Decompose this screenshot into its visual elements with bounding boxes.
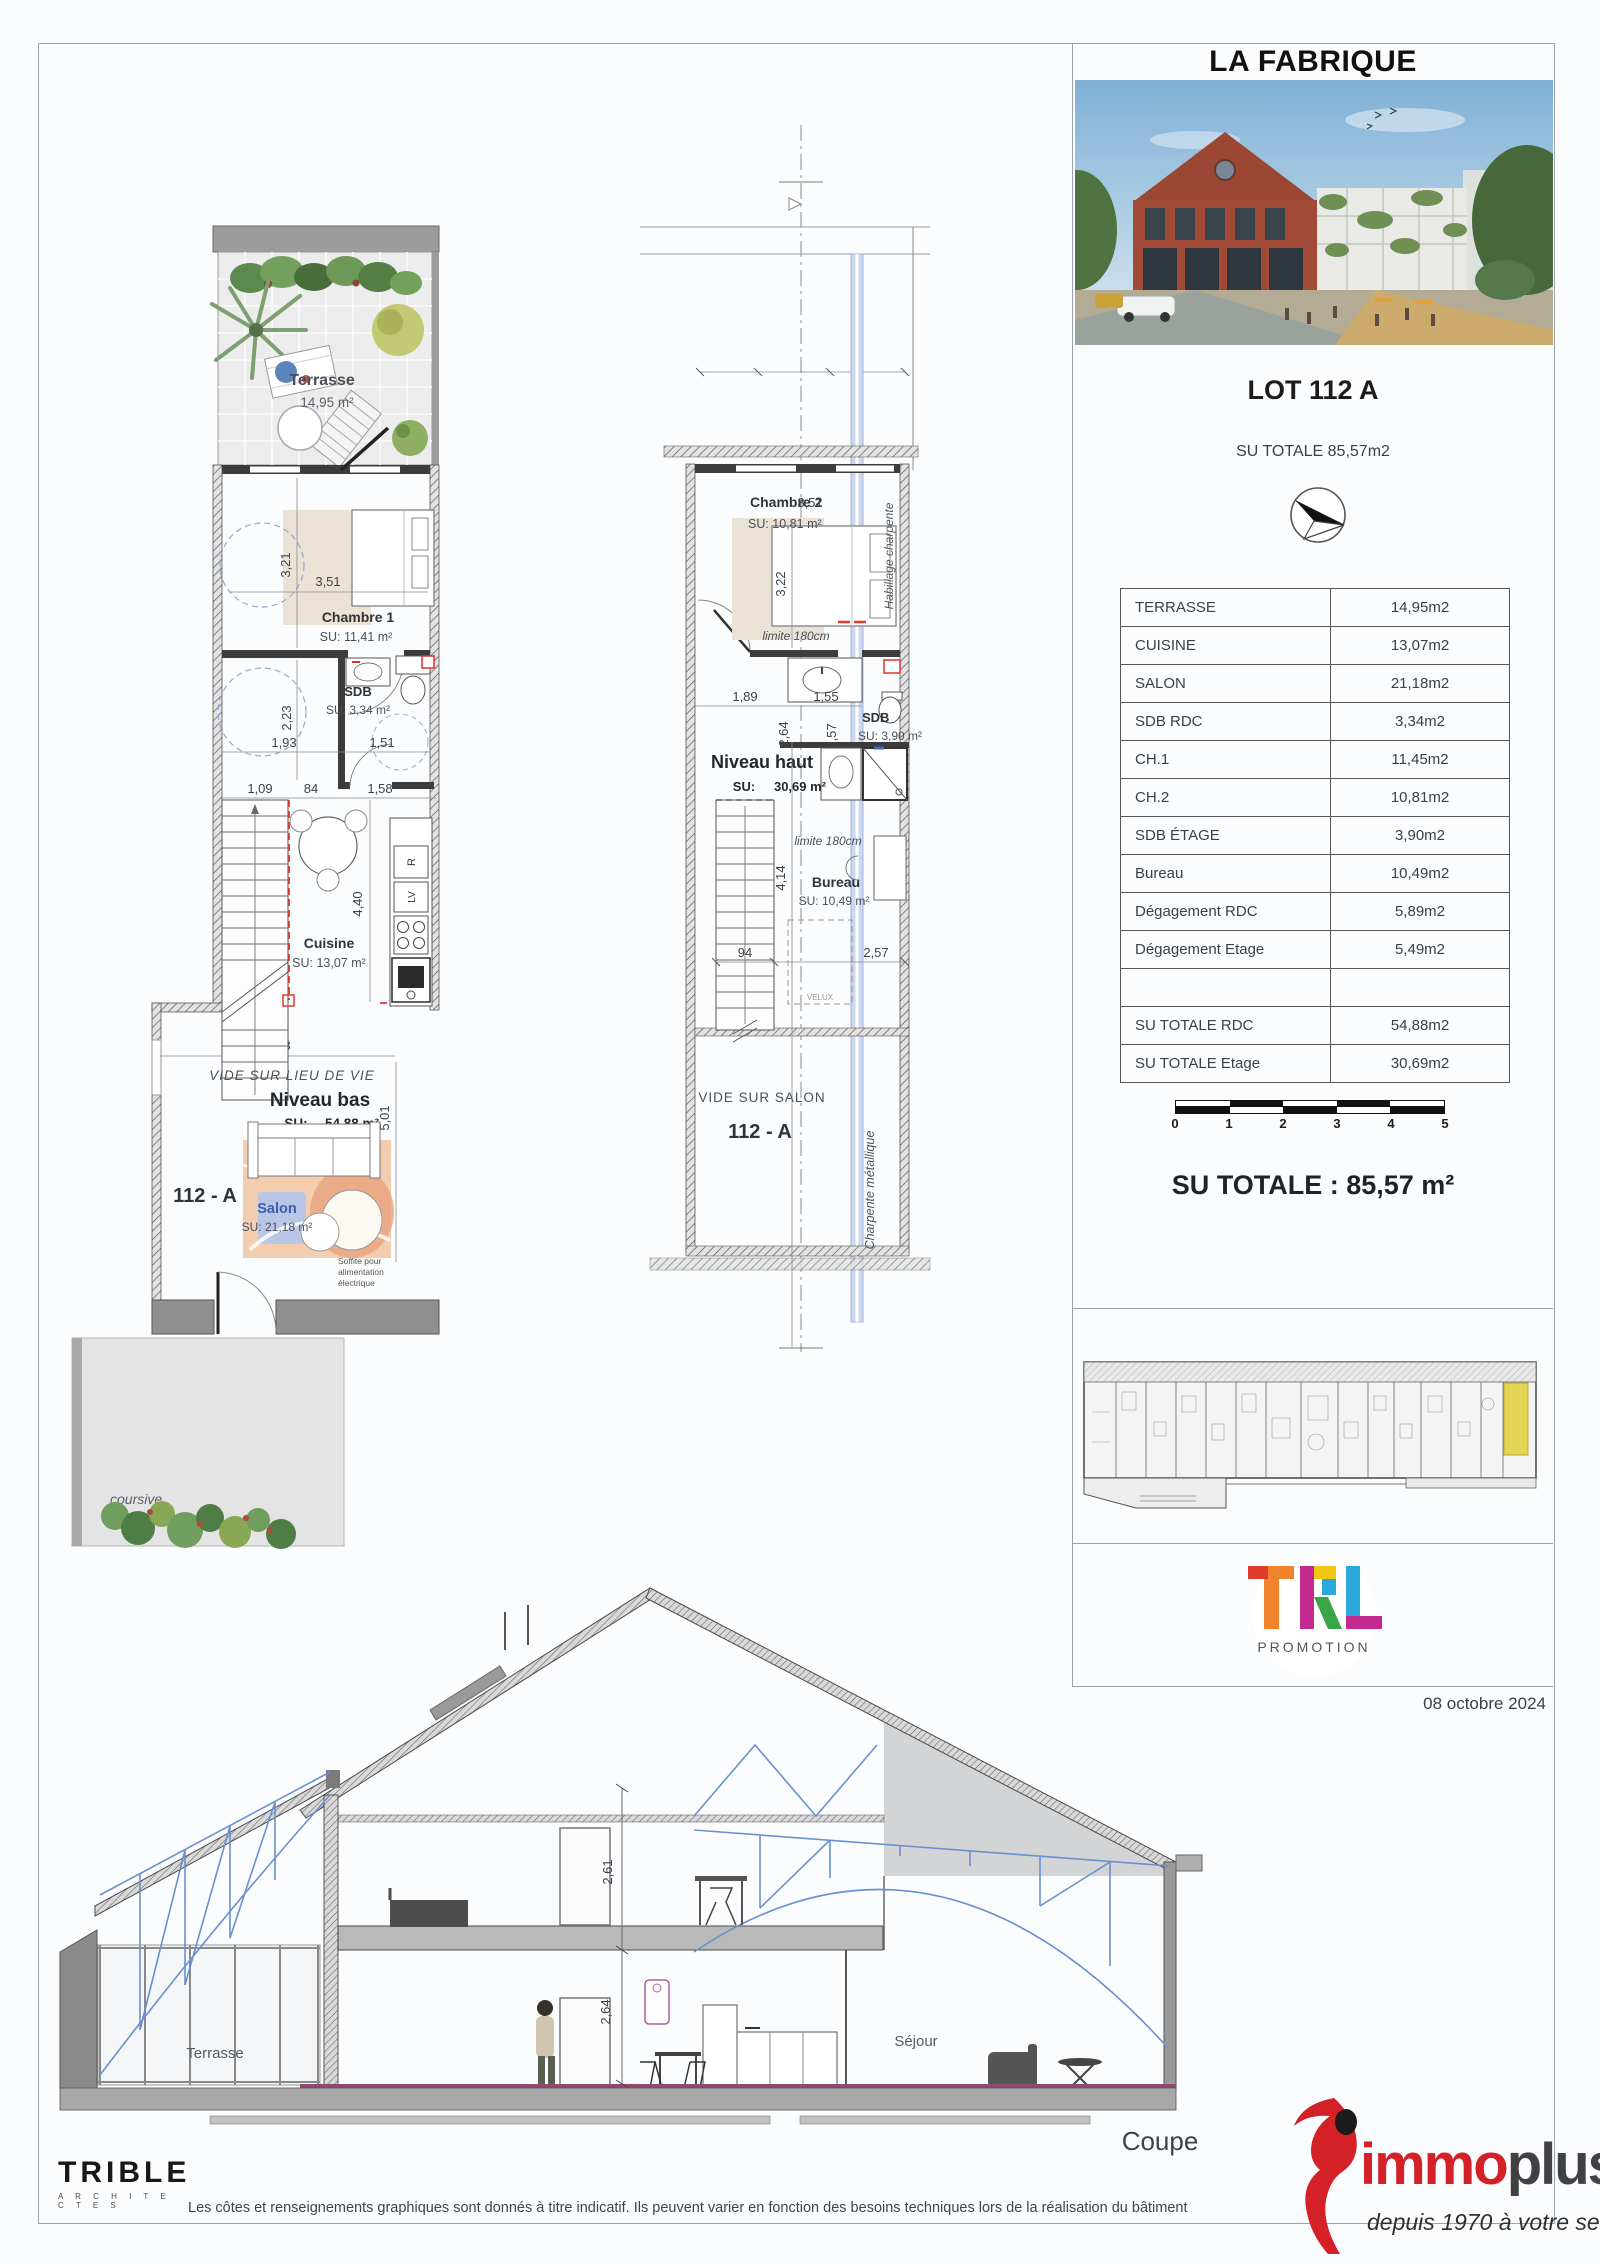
table-row-value: 5,89m2 (1331, 903, 1509, 920)
lot-number-rdc: 112 - A (173, 1185, 237, 1207)
table-row: CUISINE13,07m2 (1121, 627, 1509, 665)
table-row-value: 14,95m2 (1331, 599, 1509, 616)
soffit-note-3: électrique (338, 1278, 375, 1288)
bedroom1: Chambre 1 SU: 11,41 m² (218, 510, 434, 770)
project-title: LA FABRIQUE (1072, 45, 1554, 79)
architect-logo: TRIBLE A R C H I T E C T E S (58, 2156, 188, 2210)
table-row-value: 21,18m2 (1331, 675, 1509, 692)
dim-440: 4,40 (350, 891, 365, 916)
kitchen-area: SU: 13,07 m² (292, 956, 366, 970)
table-row-value: 10,81m2 (1331, 789, 1509, 806)
table-row-value: 10,49m2 (1331, 865, 1509, 882)
bedroom2-area: SU: 10,81 m² (748, 517, 822, 531)
immoplus-immo: immo (1360, 2132, 1507, 2197)
table-row-value: 11,45m2 (1331, 751, 1509, 768)
table-row-value: 3,90m2 (1331, 827, 1509, 844)
lot-number-etage: 112 - A (728, 1121, 792, 1143)
lot-title: LOT 112 A (1072, 375, 1554, 406)
living-room-area: SU: 21,18 m² (242, 1220, 313, 1234)
table-row: SALON21,18m2 (1121, 665, 1509, 703)
coursive-area: coursive (72, 1272, 439, 1549)
terrace-label: Terrasse (289, 372, 355, 389)
section-title: Coupe (1122, 2126, 1199, 2156)
void-living-label: VIDE SUR LIEU DE VIE (209, 1068, 375, 1083)
dim-et-189: 1,89 (732, 689, 757, 704)
table-row-label: SDB RDC (1121, 703, 1331, 740)
table-row (1121, 969, 1509, 1007)
table-row-value: 5,49m2 (1331, 941, 1509, 958)
level-high-su-label: SU: (733, 779, 755, 794)
table-row: SU TOTALE Etage30,69m2 (1121, 1045, 1509, 1083)
building-render-image (1075, 80, 1553, 345)
table-row-value: 30,69m2 (1331, 1055, 1509, 1072)
kitchen-label: Cuisine (304, 935, 355, 951)
office-label: Bureau (812, 874, 860, 890)
table-row-label: CH.1 (1121, 741, 1331, 778)
bathroom-etage-area: SU: 3,90 m² (858, 729, 922, 743)
immoplus-logo: immoplus depuis 1970 à votre service (1272, 2092, 1600, 2262)
immoplus-logo-graphic: immoplus depuis 1970 à votre service (1272, 2092, 1600, 2262)
dim-109: 1,09 (247, 781, 272, 796)
floor-plan-rdc: Terrasse 14,95 m² (60, 150, 480, 1565)
table-row-label: CH.2 (1121, 779, 1331, 816)
scale-tick-label: 1 (1225, 1116, 1232, 1131)
bedroom1-area: SU: 11,41 m² (320, 630, 393, 644)
section-sejour-label: Séjour (894, 2033, 937, 2050)
dim-351: 3,51 (315, 574, 340, 589)
table-row-label: SALON (1121, 665, 1331, 702)
dishwasher-label: LV (407, 891, 418, 903)
table-row: CH.111,45m2 (1121, 741, 1509, 779)
immoplus-plus: plus (1507, 2132, 1600, 2197)
dim-223: 2,23 (279, 705, 294, 730)
table-row-label: CUISINE (1121, 627, 1331, 664)
areas-table: TERRASSE14,95m2CUISINE13,07m2SALON21,18m… (1120, 588, 1510, 1083)
table-row-label: Bureau (1121, 855, 1331, 892)
table-row: SU TOTALE RDC54,88m2 (1121, 1007, 1509, 1045)
dim-et-257a: 2,57 (824, 723, 839, 748)
terrace-area: Terrasse 14,95 m² (212, 226, 439, 467)
table-row-label (1121, 969, 1331, 1006)
table-row: CH.210,81m2 (1121, 779, 1509, 817)
scale-segment (1230, 1107, 1284, 1113)
key-plan (1076, 1352, 1546, 1520)
dim-193: 1,93 (271, 735, 296, 750)
panel-rule-1 (1072, 1308, 1553, 1309)
table-row: SDB ÉTAGE3,90m2 (1121, 817, 1509, 855)
cross-section: 2,61 2,64 Terrasse Séjour Coupe (50, 1565, 1210, 2165)
trl-promotion-logo: PROMOTION (1238, 1552, 1390, 1678)
panel-divider (1072, 43, 1073, 1686)
scale-tick-label: 0 (1171, 1116, 1178, 1131)
velux-label: VELUX (807, 993, 834, 1002)
immoplus-tagline: depuis 1970 à votre service (1367, 2209, 1600, 2235)
lot-subtitle: SU TOTALE 85,57m2 (1072, 443, 1554, 461)
dim-sec-261: 2,61 (600, 1859, 615, 1884)
scale-tick-label: 5 (1441, 1116, 1448, 1131)
north-compass-icon (1286, 483, 1350, 547)
terrace-glazing (98, 1945, 320, 2085)
ground-slab (60, 2084, 1176, 2124)
total-surface: SU TOTALE : 85,57 m² (1072, 1170, 1554, 1201)
scale-bar: 012345 (1175, 1100, 1445, 1134)
terrace-area-value: 14,95 m² (300, 395, 354, 410)
scale-segment (1176, 1107, 1230, 1113)
scale-segment (1337, 1107, 1391, 1113)
scale-segment (1230, 1101, 1284, 1106)
scale-bar-top (1175, 1100, 1445, 1107)
height-limit-label-1: limite 180cm (762, 629, 829, 643)
table-row-label: Dégagement RDC (1121, 893, 1331, 930)
architect-subtitle: A R C H I T E C T E S (58, 2192, 188, 2210)
truss-cladding-label: Habillage charpente (882, 502, 896, 609)
dim-151: 1,51 (369, 735, 394, 750)
table-row-label: Dégagement Etage (1121, 931, 1331, 968)
soffit-note-1: Soffite pour (338, 1256, 381, 1266)
scale-tick-label: 4 (1387, 1116, 1394, 1131)
dim-84: 84 (304, 781, 318, 796)
dim-sec-264: 2,64 (598, 1999, 613, 2024)
table-row: Dégagement RDC5,89m2 (1121, 893, 1509, 931)
void-over-living-label: VIDE SUR SALON (698, 1090, 825, 1105)
disclaimer-text: Les côtes et renseignements graphiques s… (188, 2200, 1368, 2216)
dim-et-94: 94 (738, 945, 752, 960)
scale-tick-label: 3 (1333, 1116, 1340, 1131)
soffit-note-2: alimentation (338, 1267, 384, 1277)
upper-ceiling (338, 1815, 884, 1822)
scale-segment (1337, 1101, 1391, 1106)
section-terrace-label: Terrasse (186, 2045, 244, 2062)
table-row-value: 13,07m2 (1331, 637, 1509, 654)
scale-segment (1283, 1107, 1337, 1113)
bathroom-etage-label: SDB (862, 710, 889, 725)
steel-frame-label: Charpente métallique (863, 1131, 877, 1250)
table-row-label: SU TOTALE RDC (1121, 1007, 1331, 1044)
table-row: Dégagement Etage5,49m2 (1121, 931, 1509, 969)
table-row-value: 3,34m2 (1331, 713, 1509, 730)
dim-et-257b: 2,57 (863, 945, 888, 960)
scale-bar-numbers: 012345 (1175, 1114, 1445, 1132)
floor-plan-etage: Chambre 2 SU: 10,81 m² 3,51 3,22 Habilla… (600, 110, 940, 1360)
office-area: SU: 10,49 m² (799, 894, 870, 908)
level-low-label: Niveau bas (270, 1090, 370, 1111)
panel-rule-2 (1072, 1543, 1553, 1544)
bedroom2: Chambre 2 SU: 10,81 m² 3,51 3,22 Habilla… (732, 494, 896, 648)
table-row-label: TERRASSE (1121, 589, 1331, 626)
stairs-etage (716, 800, 774, 1042)
bathroom-rdc-area: SU: 3,34 m² (326, 703, 390, 717)
dim-et-351: 3,51 (797, 495, 822, 510)
dim-321: 3,21 (278, 552, 293, 577)
table-row: Bureau10,49m2 (1121, 855, 1509, 893)
dim-et-414: 4,14 (773, 865, 788, 890)
table-row-value: 54,88m2 (1331, 1017, 1509, 1034)
trl-promotion-label: PROMOTION (1257, 1639, 1370, 1655)
table-row: TERRASSE14,95m2 (1121, 589, 1509, 627)
living-room-label: Salon (257, 1201, 296, 1217)
dim-et-155: 1,55 (813, 689, 838, 704)
scale-segment (1176, 1101, 1230, 1106)
dim-et-264: 2,64 (776, 721, 791, 746)
table-row: SDB RDC3,34m2 (1121, 703, 1509, 741)
lot-highlight (1504, 1383, 1528, 1455)
level-high-label: Niveau haut (711, 752, 813, 772)
height-limit-label-2: limite 180cm (794, 834, 861, 848)
svg-text:immoplus: immoplus (1360, 2132, 1600, 2197)
section-furniture (390, 1876, 1102, 2088)
plan-sheet: LA FABRIQUE (0, 0, 1600, 2264)
bedroom1-label: Chambre 1 (322, 609, 395, 625)
scale-segment (1390, 1101, 1444, 1106)
scale-segment (1390, 1107, 1444, 1113)
floor-slab (338, 1926, 883, 1950)
bathroom-rdc-label: SDB (344, 684, 371, 699)
living-room: 112 - A Salon SU: 21,18 m² Soffite pour … (173, 1122, 394, 1288)
dim-et-322: 3,22 (773, 571, 788, 596)
level-high-su-value: 30,69 m² (774, 779, 827, 794)
scale-tick-label: 2 (1279, 1116, 1286, 1131)
dim-158: 1,58 (367, 781, 392, 796)
scale-bar-bottom (1175, 1107, 1445, 1114)
fridge-label: R (406, 858, 418, 866)
table-row-label: SDB ÉTAGE (1121, 817, 1331, 854)
architect-name: TRIBLE (58, 2156, 188, 2190)
table-row-label: SU TOTALE Etage (1121, 1045, 1331, 1082)
scale-segment (1283, 1101, 1337, 1106)
